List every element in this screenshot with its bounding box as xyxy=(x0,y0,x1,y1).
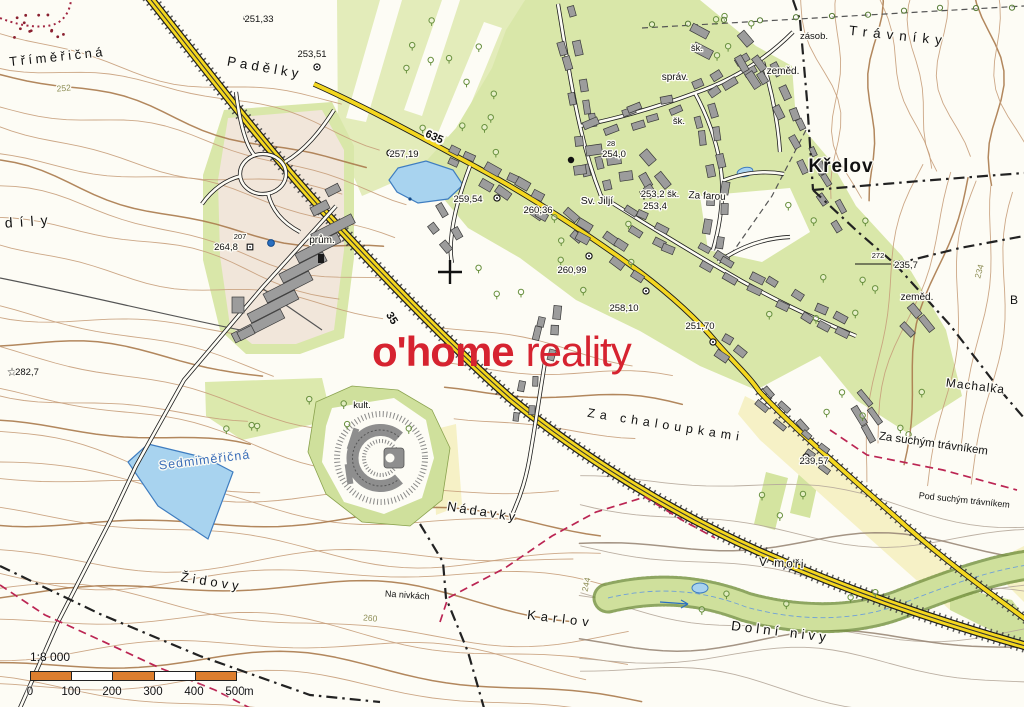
spot-height: 239,57 xyxy=(799,456,828,467)
road-number: 35 xyxy=(383,310,400,327)
spot-height: 260,99 xyxy=(557,265,586,276)
scale-bar-ticks: 0100200300400500m xyxy=(30,686,235,700)
place-label: šk. xyxy=(691,43,703,54)
scale-bar xyxy=(30,671,237,681)
place-label: Na nivkách xyxy=(385,588,430,601)
contour-label: 252 xyxy=(56,82,71,93)
place-label: kult. xyxy=(353,400,370,411)
point-number: 28 xyxy=(607,139,615,148)
spot-height: 264,8 xyxy=(214,242,238,253)
scale-bar-segment xyxy=(196,672,236,680)
fort-earthwork xyxy=(308,386,450,526)
scale-tick-label: 300 xyxy=(143,686,162,698)
spot-height: 260,36 xyxy=(523,205,552,216)
contour-label: 244 xyxy=(580,576,593,592)
scale-tick-label: 400 xyxy=(184,686,203,698)
point-number: 207 xyxy=(234,232,247,241)
place-label: zeměd. xyxy=(901,292,934,303)
spot-height: 253,2 šk. xyxy=(641,189,680,200)
spot-height: 251,70 xyxy=(685,321,714,332)
contour-label: 234 xyxy=(972,263,985,280)
place-label: správ. xyxy=(662,72,689,83)
place-label: šk. xyxy=(673,116,685,127)
place-label: Karlov xyxy=(526,607,594,630)
spot-height: 258,10 xyxy=(609,303,638,314)
scale-tick-label: 100 xyxy=(61,686,80,698)
place-label: Křelov xyxy=(808,156,873,177)
scale-bar-segment xyxy=(72,672,113,680)
place-label: díly xyxy=(4,211,55,230)
place-label: prům. xyxy=(309,234,335,246)
place-label: Tříměřičná xyxy=(8,44,106,69)
map-canvas: ☆ TříměřičnáPadělkydílyTrávníkyKřelovzás… xyxy=(0,0,1024,707)
place-label: Nádavky xyxy=(446,499,519,525)
place-label: Pod suchým trávníkem xyxy=(918,490,1010,510)
spot-height: 251,33 xyxy=(244,14,273,25)
place-label: Trávníky xyxy=(848,23,948,48)
point-number: 272 xyxy=(872,251,885,260)
place-label: Padělky xyxy=(226,54,303,82)
place-label: Za farou xyxy=(688,190,726,203)
place-label: V moři xyxy=(759,555,806,571)
spot-height: 282,7 xyxy=(15,367,39,378)
scale-bar-segment xyxy=(155,672,196,680)
scale-unit: m xyxy=(244,686,254,698)
spot-height: 235,7 xyxy=(894,260,918,271)
place-label: zeměd. xyxy=(767,66,800,77)
place-label: Sv. Jiljí xyxy=(581,195,614,207)
scale-bar-segment xyxy=(113,672,154,680)
spot-height: 253,51 xyxy=(297,49,326,60)
place-label: B xyxy=(1010,293,1018,307)
scale-tick-label: 200 xyxy=(102,686,121,698)
place-label: zásob. xyxy=(800,31,828,42)
topographic-map: ☆ TříměřičnáPadělkydílyTrávníkyKřelovzás… xyxy=(0,0,1024,707)
scale-ratio: 1:8 000 xyxy=(30,650,70,664)
spot-height: 254,0 xyxy=(602,149,626,160)
spot-height: 257,19 xyxy=(389,149,418,160)
landuse-layer xyxy=(203,0,1024,642)
place-label: Za suchým trávníkem xyxy=(878,430,989,457)
scale-tick-label: 500 xyxy=(225,686,244,698)
spot-height: 259,54 xyxy=(453,194,482,205)
scale-tick-label: 0 xyxy=(27,686,33,698)
contour-label: 260 xyxy=(363,612,378,623)
scale-bar-segment xyxy=(31,672,72,680)
place-label: Za chaloupkami xyxy=(586,406,744,445)
spot-height: 253,4 xyxy=(643,201,667,212)
